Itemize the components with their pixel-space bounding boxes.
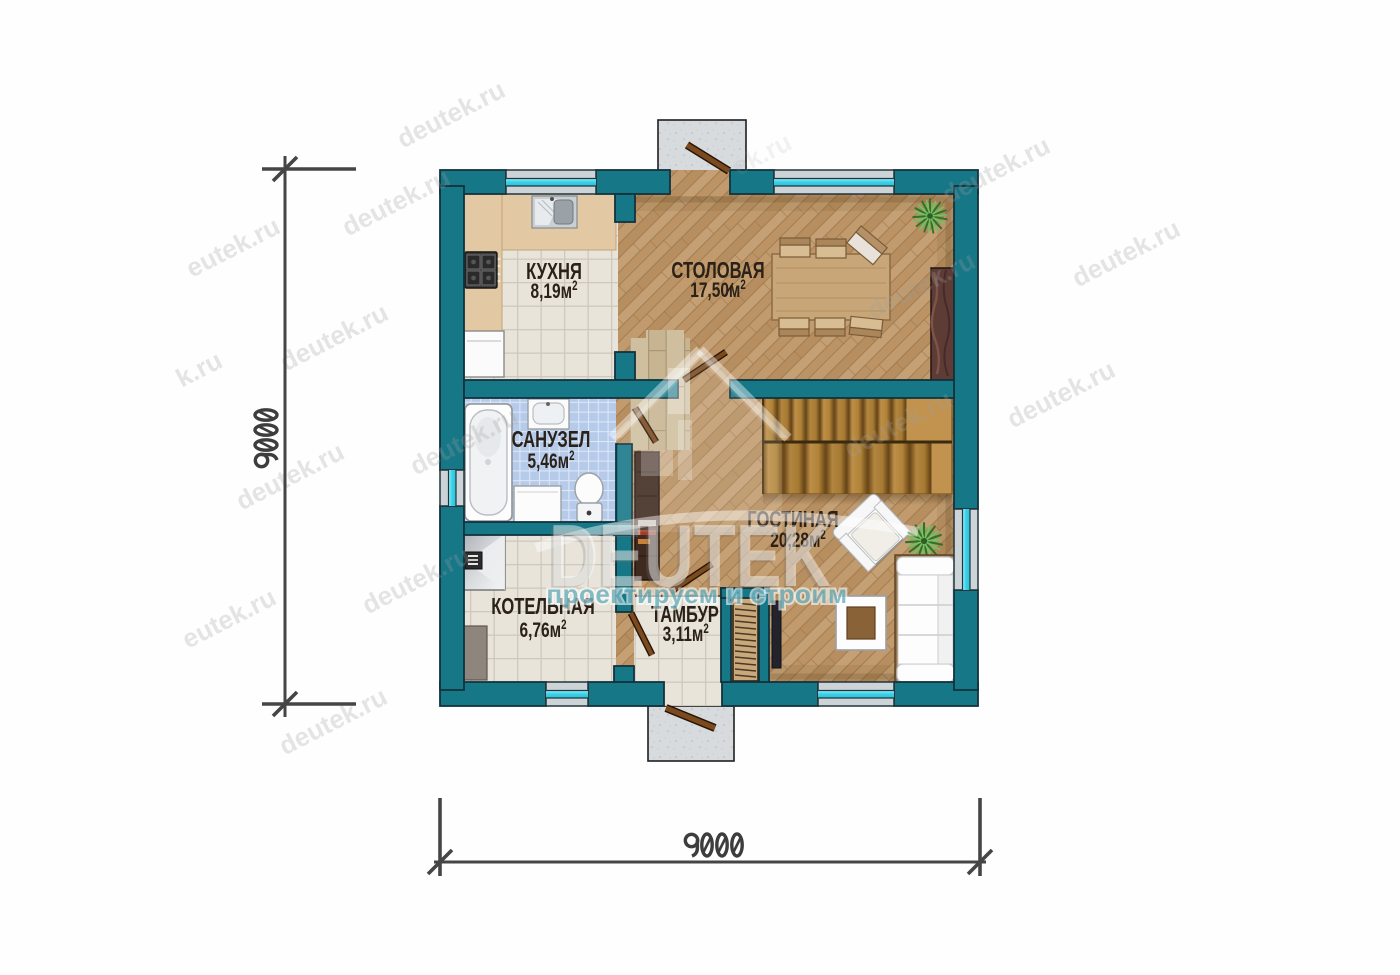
svg-text:17,50м2: 17,50м2 <box>690 277 746 301</box>
svg-text:3,11м2: 3,11м2 <box>663 621 709 645</box>
svg-text:6,76м2: 6,76м2 <box>520 617 567 641</box>
svg-text:5,46м2: 5,46м2 <box>528 448 575 472</box>
svg-text:8,19м2: 8,19м2 <box>531 278 578 302</box>
svg-text:проектируем и строим: проектируем и строим <box>546 579 847 609</box>
